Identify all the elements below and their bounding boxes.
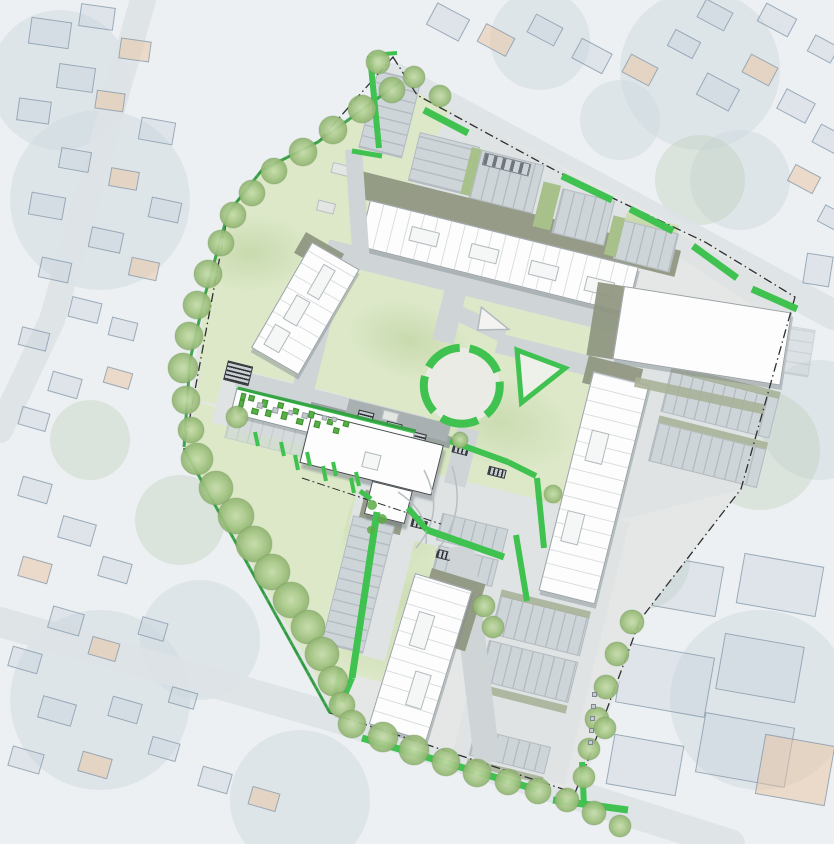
tree xyxy=(594,717,616,739)
tree xyxy=(181,443,213,475)
bollard xyxy=(590,716,595,721)
tree xyxy=(261,158,287,184)
tree xyxy=(429,85,451,107)
hedge xyxy=(307,452,310,466)
hedge xyxy=(562,176,612,200)
hedge xyxy=(537,478,544,548)
hedge-line xyxy=(238,388,416,431)
site-plan-canvas xyxy=(0,0,834,844)
bollard xyxy=(592,692,597,697)
tree xyxy=(473,595,495,617)
tree xyxy=(555,788,579,812)
tree xyxy=(495,769,521,795)
tree xyxy=(194,260,222,288)
hedge xyxy=(508,462,536,476)
hedge xyxy=(295,455,298,470)
tree xyxy=(220,202,246,228)
turning-curve xyxy=(398,492,426,544)
hedge xyxy=(351,478,354,493)
tree xyxy=(582,801,606,825)
bollard xyxy=(588,740,593,745)
hedge xyxy=(281,442,284,456)
hedge xyxy=(255,432,258,446)
bush xyxy=(367,526,375,534)
hedge xyxy=(408,508,427,530)
tree xyxy=(289,138,317,166)
tree xyxy=(620,610,644,634)
turning-curve xyxy=(416,470,434,548)
tree xyxy=(208,230,234,256)
tree xyxy=(178,417,204,443)
tree xyxy=(432,748,460,776)
hedge xyxy=(333,462,336,476)
tree xyxy=(594,675,618,699)
tree xyxy=(168,353,198,383)
tree xyxy=(239,180,265,206)
tree xyxy=(403,66,425,88)
hedge xyxy=(693,246,737,278)
hedge xyxy=(323,466,326,481)
tree xyxy=(338,710,366,738)
hedge xyxy=(630,209,673,231)
hedge xyxy=(352,512,377,678)
tree xyxy=(463,759,491,787)
tree xyxy=(452,432,468,448)
tree xyxy=(573,766,595,788)
tree xyxy=(482,616,504,638)
tree xyxy=(348,95,376,123)
tree xyxy=(226,406,248,428)
tree xyxy=(319,116,347,144)
tree xyxy=(399,735,429,765)
tree xyxy=(609,815,631,837)
tree xyxy=(605,642,629,666)
hedge xyxy=(424,110,468,133)
tree xyxy=(525,778,551,804)
overlay xyxy=(0,0,834,844)
tree xyxy=(368,722,398,752)
tree xyxy=(318,666,348,696)
tree xyxy=(175,322,203,350)
bush xyxy=(367,500,377,510)
tree xyxy=(366,50,390,74)
hedge xyxy=(427,530,504,557)
hedge xyxy=(352,151,382,156)
hedge xyxy=(360,491,371,499)
bollard xyxy=(589,728,594,733)
tree xyxy=(544,485,562,503)
bollard xyxy=(591,704,596,709)
tree xyxy=(379,77,405,103)
hedge xyxy=(516,535,527,601)
tree xyxy=(172,386,200,414)
hedge xyxy=(752,289,797,309)
tree xyxy=(183,291,211,319)
hedge xyxy=(356,472,359,486)
bush xyxy=(377,514,387,524)
